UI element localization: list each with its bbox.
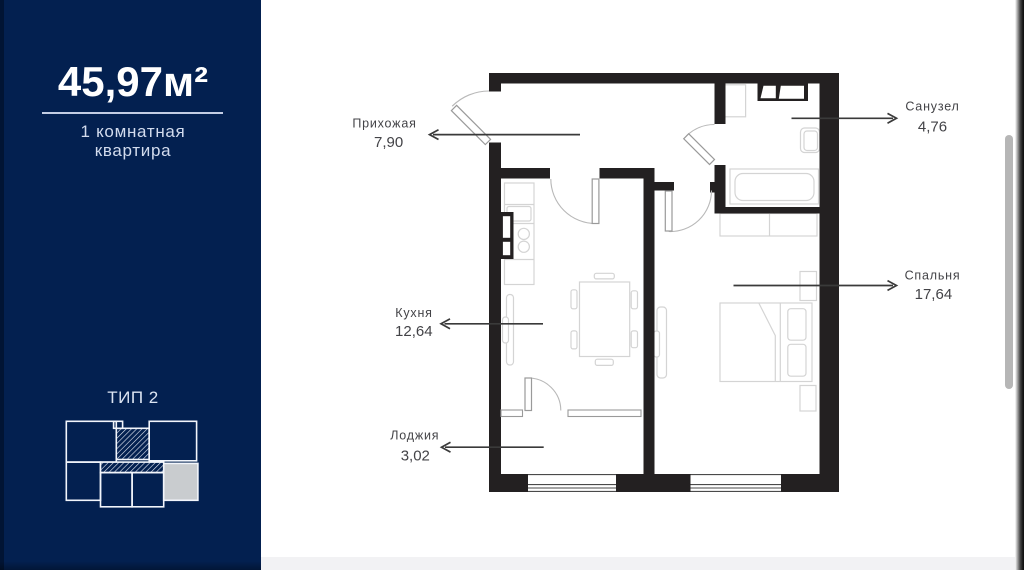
- svg-text:3,02: 3,02: [401, 448, 430, 465]
- svg-text:Кухня: Кухня: [395, 306, 432, 320]
- svg-text:4,76: 4,76: [918, 119, 947, 136]
- svg-text:Спальня: Спальня: [905, 269, 961, 283]
- svg-text:Лоджия: Лоджия: [390, 429, 439, 443]
- svg-text:17,64: 17,64: [915, 286, 953, 303]
- svg-text:Прихожая: Прихожая: [352, 117, 416, 131]
- svg-text:7,90: 7,90: [374, 134, 403, 151]
- svg-text:Санузел: Санузел: [905, 100, 959, 114]
- svg-text:12,64: 12,64: [395, 323, 433, 340]
